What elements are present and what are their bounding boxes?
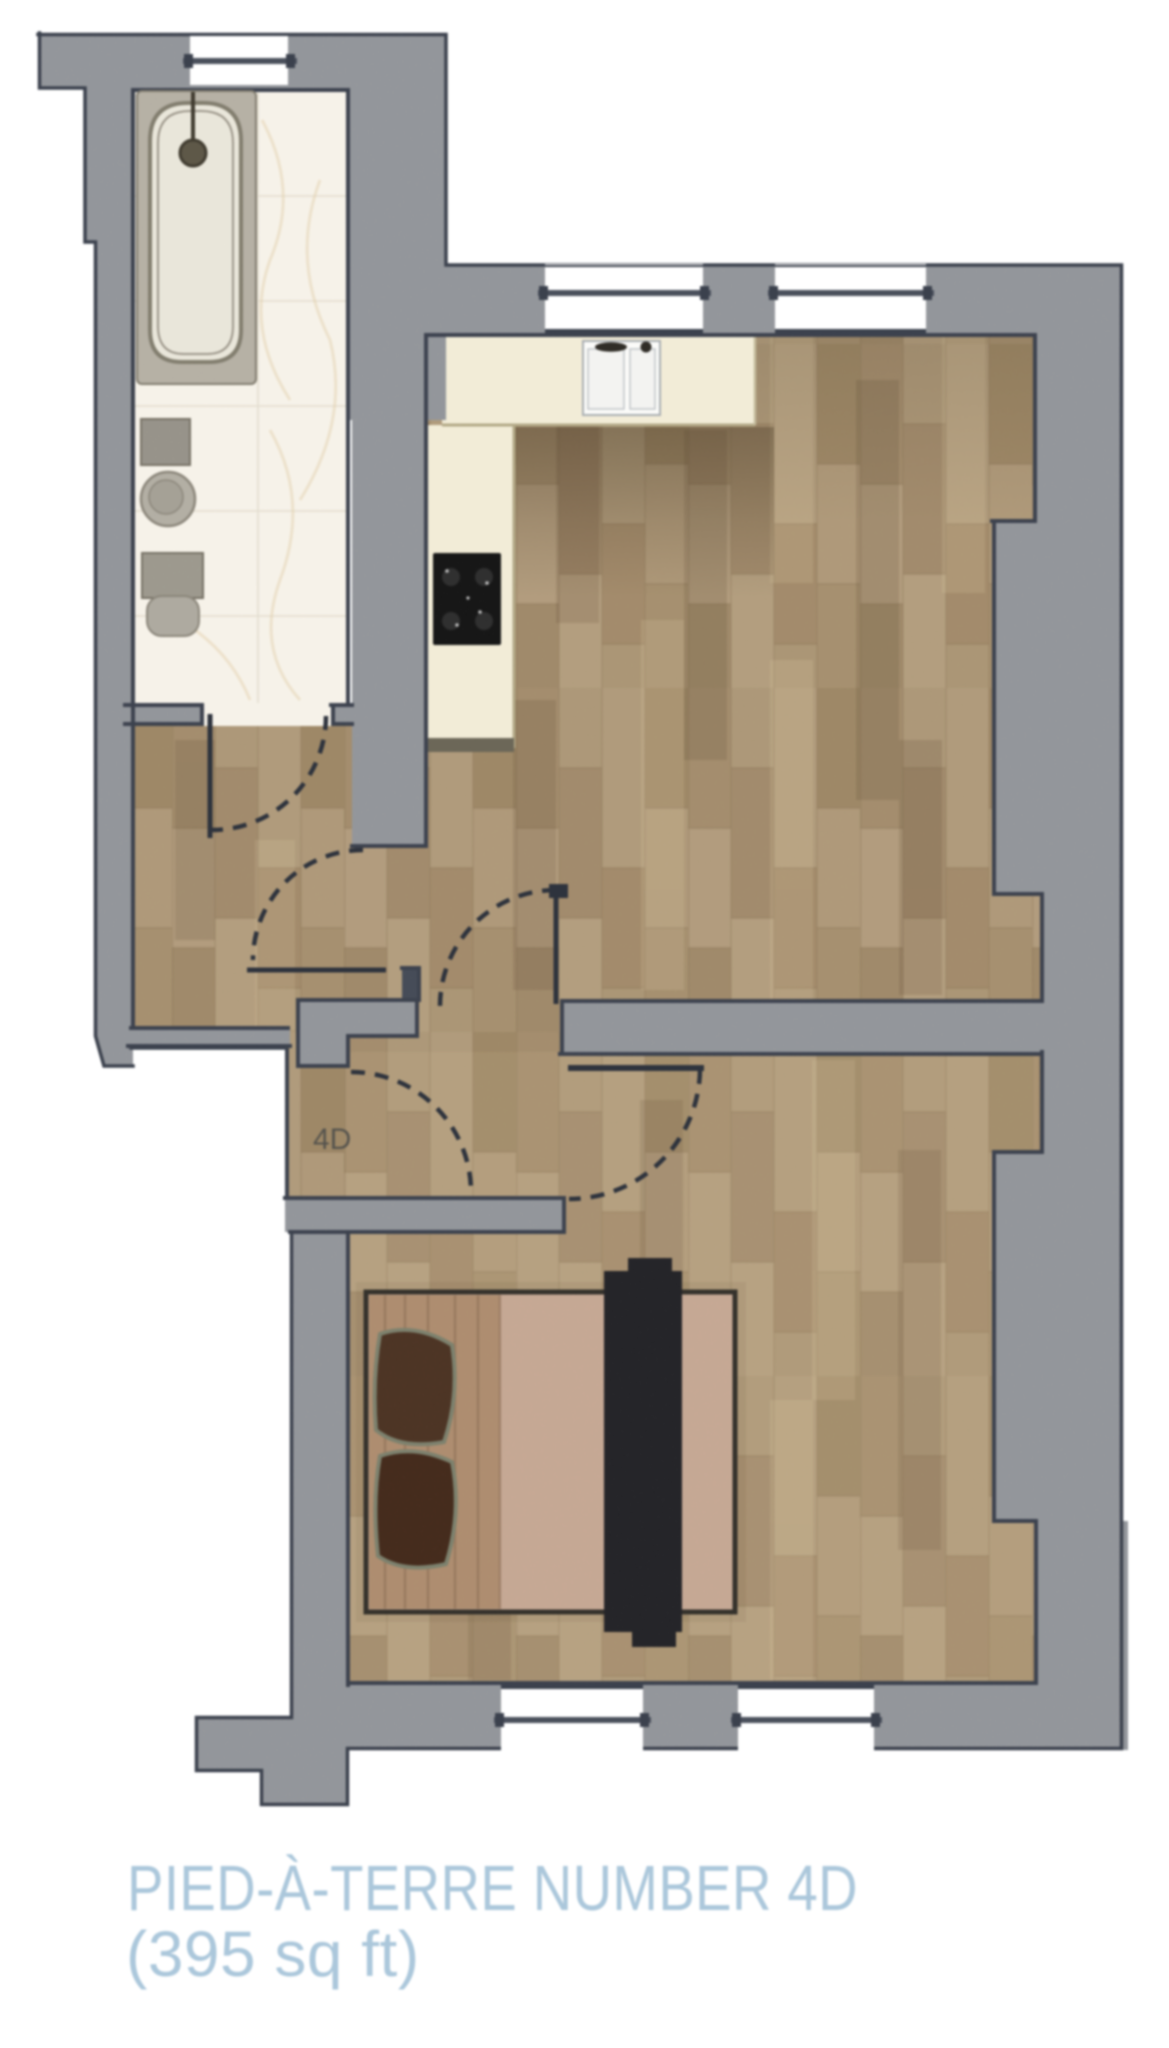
svg-text:PIED-À-TERRE NUMBER 4D: PIED-À-TERRE NUMBER 4D [127,1852,858,1924]
svg-text:4D: 4D [313,1123,351,1156]
svg-text:(395 sq ft): (395 sq ft) [126,1918,420,1990]
